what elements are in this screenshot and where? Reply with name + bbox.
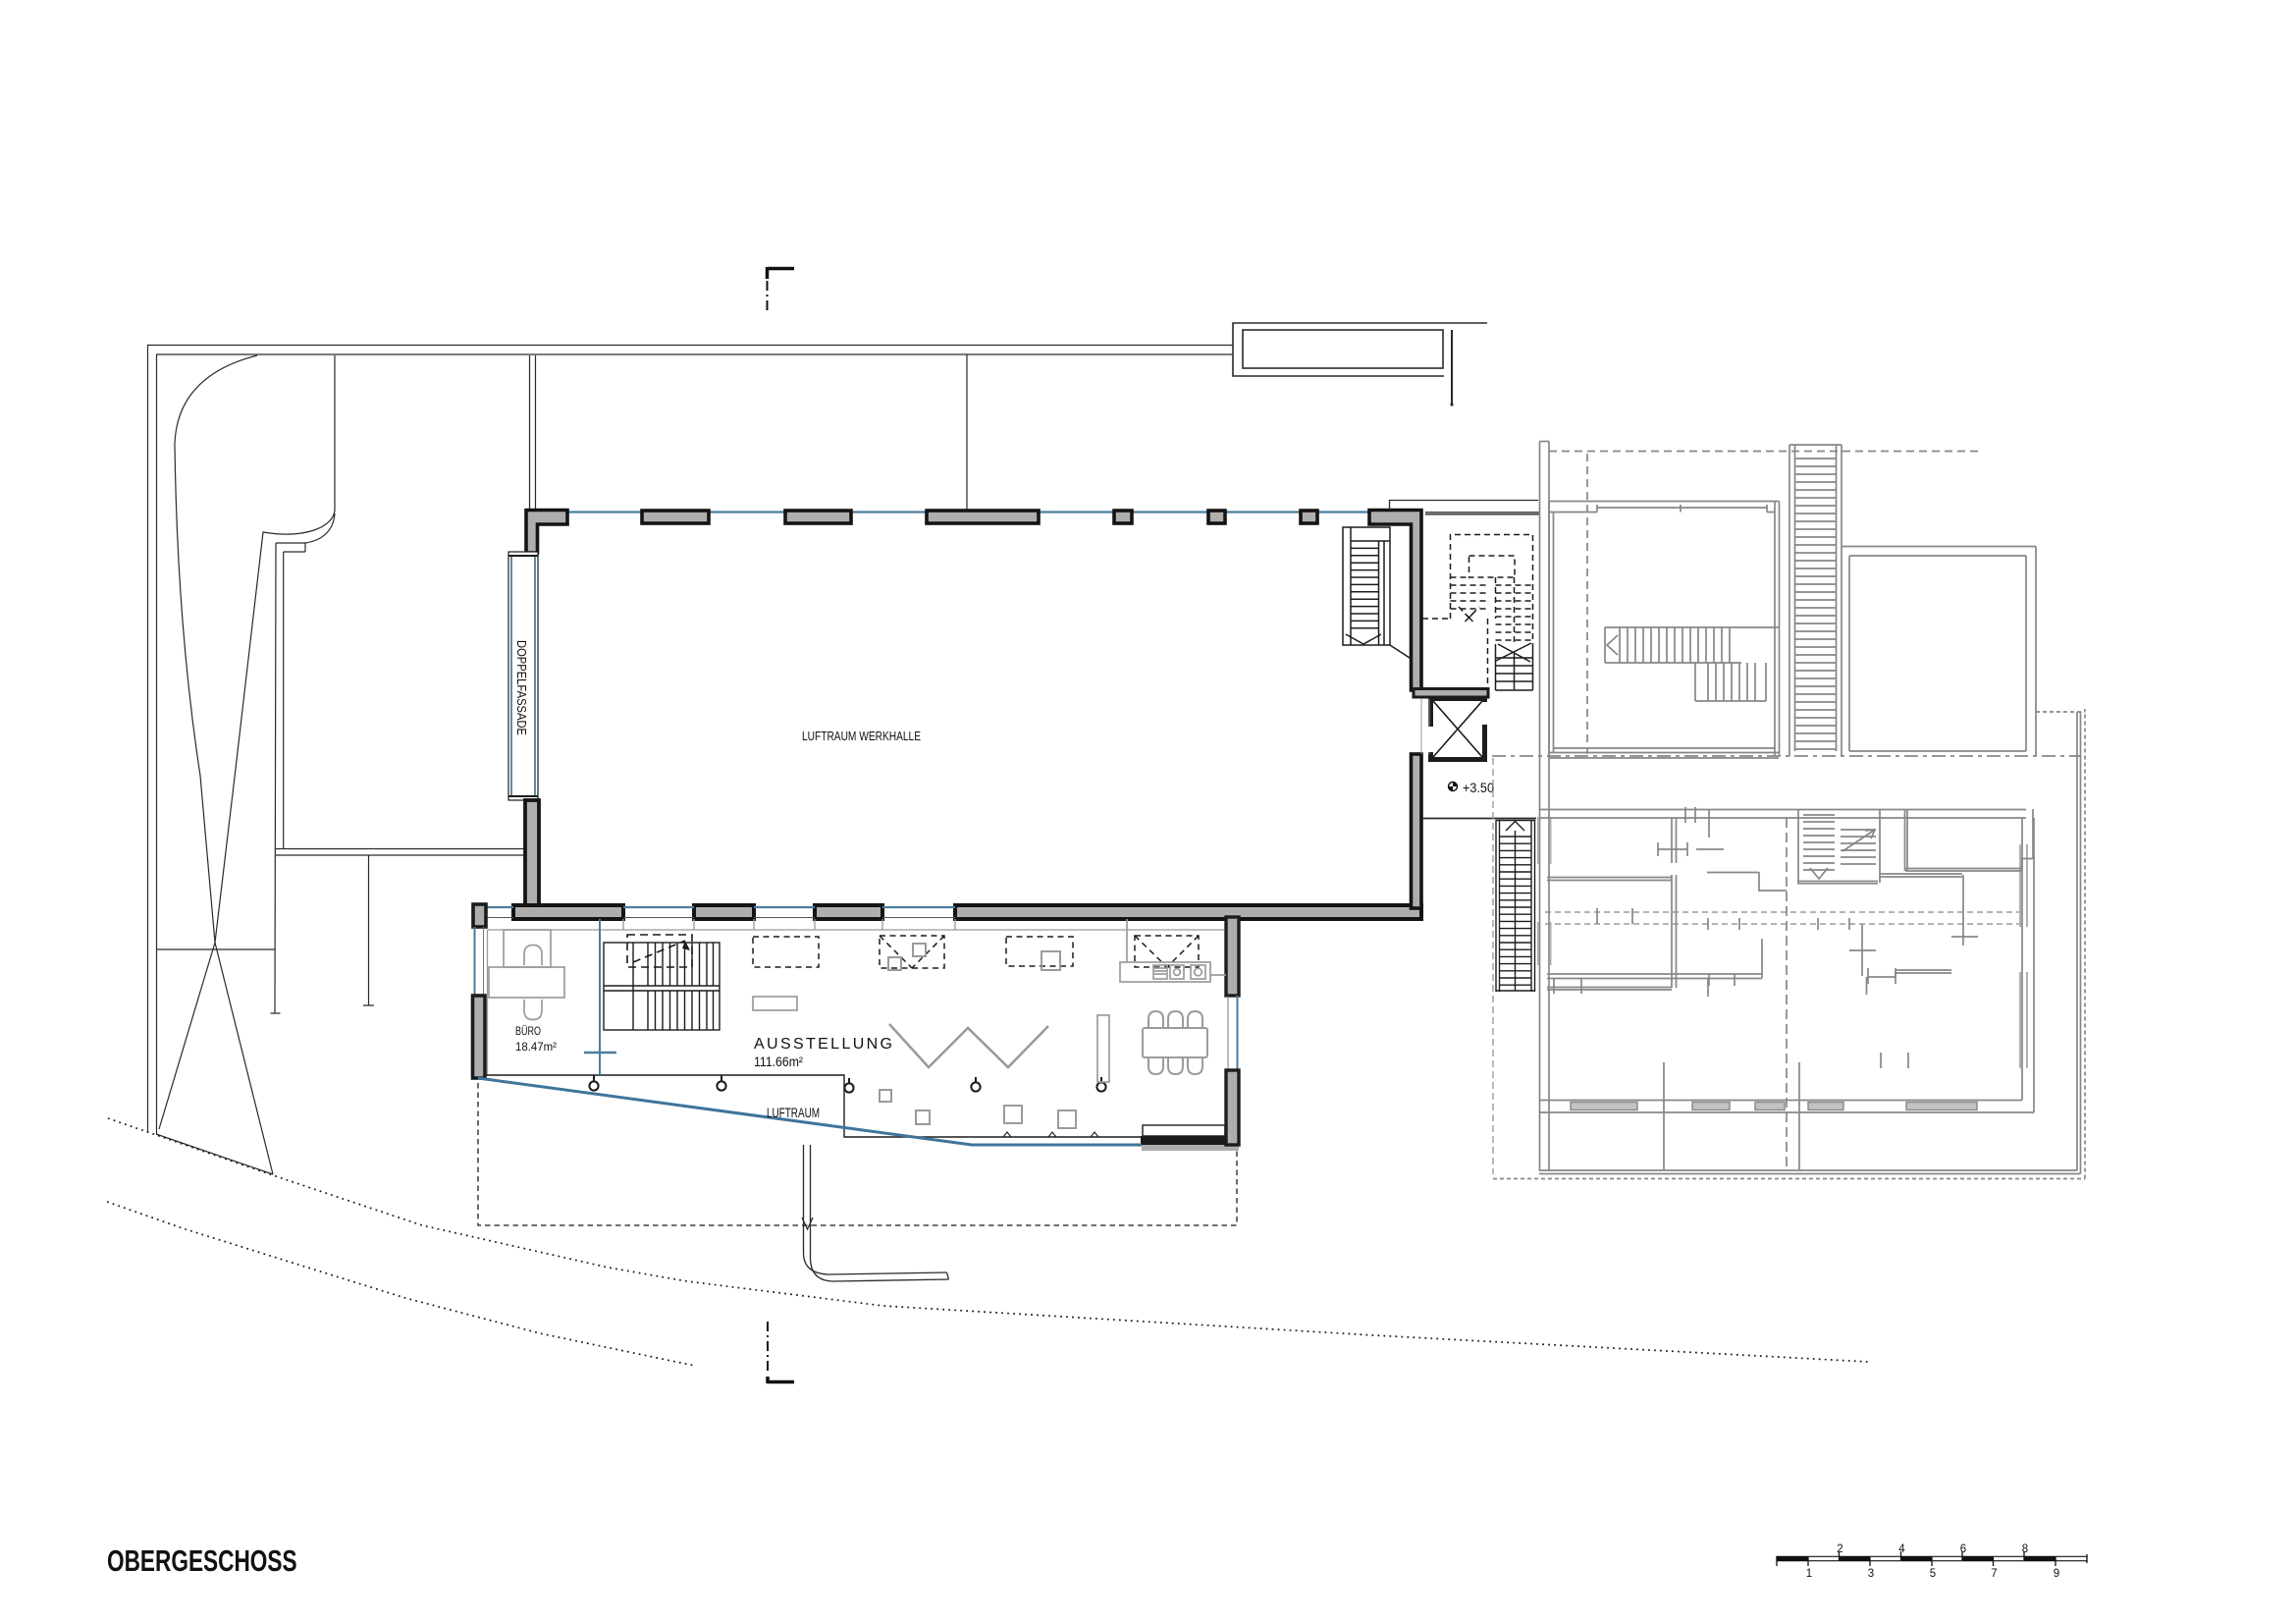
- svg-text:LUFTRAUM WERKHALLE: LUFTRAUM WERKHALLE: [802, 729, 921, 743]
- svg-text:18.47m²: 18.47m²: [515, 1040, 557, 1054]
- svg-text:AUSSTELLUNG: AUSSTELLUNG: [754, 1036, 892, 1053]
- svg-text:+3.50: +3.50: [1463, 781, 1494, 795]
- svg-text:DOPPELFASSADE: DOPPELFASSADE: [514, 640, 528, 735]
- svg-text:2: 2: [1837, 1543, 1842, 1555]
- svg-text:7: 7: [1991, 1568, 1997, 1580]
- svg-text:3: 3: [1868, 1568, 1874, 1580]
- svg-text:LUFTRAUM: LUFTRAUM: [767, 1106, 820, 1120]
- svg-text:OBERGESCHOSS: OBERGESCHOSS: [107, 1542, 297, 1577]
- svg-text:5: 5: [1930, 1568, 1936, 1580]
- svg-text:1: 1: [1806, 1568, 1812, 1580]
- svg-text:8: 8: [2022, 1543, 2028, 1555]
- svg-text:6: 6: [1960, 1543, 1966, 1555]
- svg-text:9: 9: [2054, 1568, 2059, 1580]
- svg-text:4: 4: [1898, 1543, 1905, 1555]
- svg-text:111.66m²: 111.66m²: [754, 1055, 803, 1069]
- svg-text:BÜRO: BÜRO: [515, 1024, 541, 1038]
